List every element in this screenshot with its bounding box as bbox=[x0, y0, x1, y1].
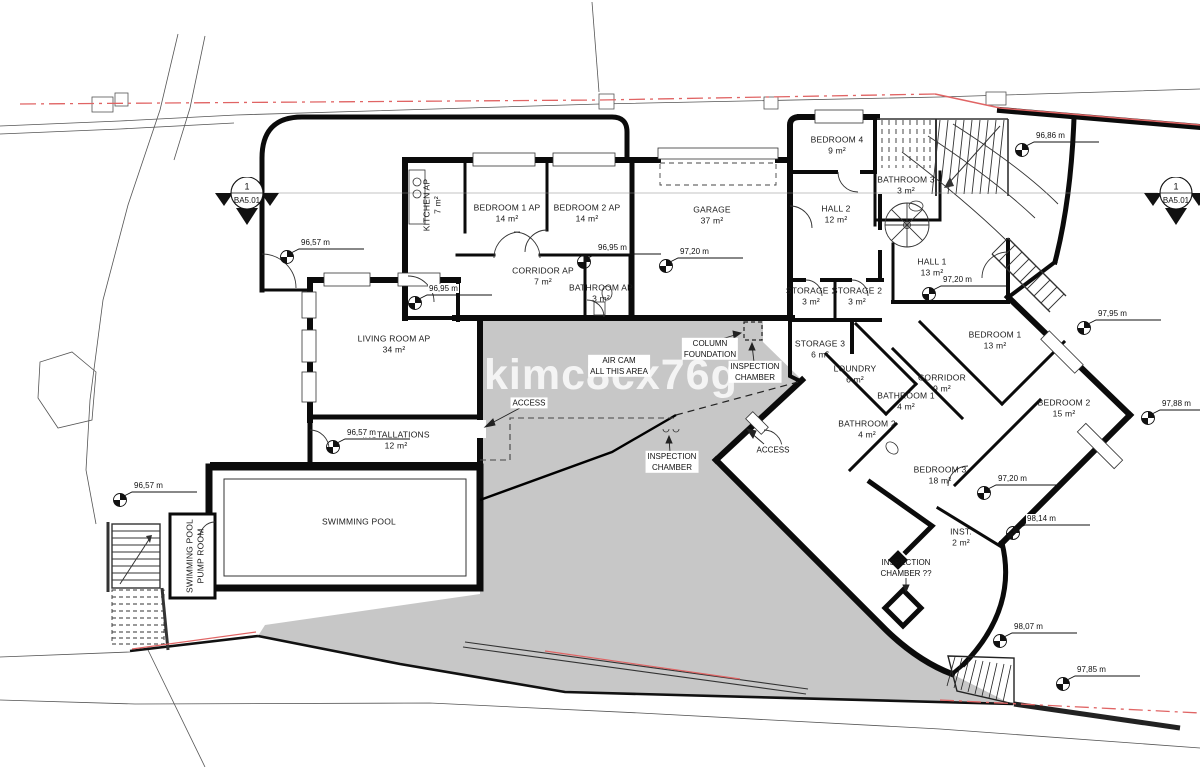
elevation-value: 97,85 m bbox=[1076, 665, 1107, 674]
elevation-value: 96,95 m bbox=[597, 243, 628, 252]
room-label-loundry: LOUNDRY6 m² bbox=[834, 364, 877, 387]
annotation-column-foundation: COLUMNFOUNDATION bbox=[682, 338, 738, 360]
floor-plan-canvas: kimc8cx76g KITCHEN AP7 m²BEDROOM 1 AP14 … bbox=[0, 0, 1200, 767]
room-label-storage-2: STORAGE 23 m² bbox=[832, 286, 882, 309]
elevation-value: 97,20 m bbox=[942, 275, 973, 284]
room-label-kitchen-ap: KITCHEN AP7 m² bbox=[422, 179, 445, 232]
room-label-bedroom-1-ap: BEDROOM 1 AP14 m² bbox=[474, 203, 541, 226]
room-label-garage: GARAGE37 m² bbox=[693, 205, 731, 228]
svg-text:BA5.01: BA5.01 bbox=[1163, 196, 1190, 205]
room-label-living-room-ap: LIVING ROOM AP34 m² bbox=[358, 334, 431, 357]
elevation-value: 96,95 m bbox=[428, 284, 459, 293]
room-label-swimming-pool-pump-room: SWIMMING POOLPUMP ROOM bbox=[185, 519, 208, 593]
elevation-value: 97,95 m bbox=[1097, 309, 1128, 318]
room-label-swimming-pool: SWIMMING POOL bbox=[322, 516, 396, 527]
svg-text:BA5.01: BA5.01 bbox=[234, 196, 261, 205]
room-label-hall-2: HALL 212 m² bbox=[821, 204, 850, 227]
room-label-bathroom-ap: BATHROOM AP3 m² bbox=[569, 283, 633, 306]
room-label-corridor-ap: CORRIDOR AP7 m² bbox=[512, 266, 574, 289]
room-label-bathroom-2: BATHROOM 24 m² bbox=[838, 419, 896, 442]
elevation-value: 98,14 m bbox=[1026, 514, 1057, 523]
elevation-value: 98,07 m bbox=[1013, 622, 1044, 631]
elevation-value: 97,20 m bbox=[997, 474, 1028, 483]
room-label-storage-1: STORAGE 13 m² bbox=[786, 286, 836, 309]
annotation-access: ACCESS bbox=[511, 397, 548, 408]
svg-text:1: 1 bbox=[244, 182, 249, 192]
room-label-bedroom-4: BEDROOM 49 m² bbox=[811, 135, 864, 158]
annotation-air-cam-all-this-area: AIR CAMALL THIS AREA bbox=[588, 355, 650, 377]
room-label-bathroom-3: BATHROOM 33 m² bbox=[877, 175, 935, 198]
room-label-bathroom-1: BATHROOM 14 m² bbox=[877, 391, 935, 414]
svg-text:1: 1 bbox=[1173, 182, 1178, 192]
room-label-bedroom-3: BEDROOM 318 m² bbox=[914, 465, 967, 488]
labels-layer: KITCHEN AP7 m²BEDROOM 1 AP14 m²BEDROOM 2… bbox=[0, 0, 1200, 767]
elevation-value: 97,88 m bbox=[1161, 399, 1192, 408]
annotation-inspection-chamber: INSPECTIONCHAMBER bbox=[646, 451, 699, 473]
room-label-bedroom-1: BEDROOM 113 m² bbox=[969, 330, 1022, 353]
room-label-bedroom-2: BEDROOM 215 m² bbox=[1038, 398, 1091, 421]
elevation-value: 96,57 m bbox=[300, 238, 331, 247]
room-label-storage-3: STORAGE 36 m² bbox=[795, 339, 845, 362]
annotation-access: ACCESS bbox=[755, 444, 792, 455]
annotation-inspection-chamber: INSPECTIONCHAMBER ?? bbox=[880, 557, 931, 579]
elevation-value: 96,86 m bbox=[1035, 131, 1066, 140]
room-label-bedroom-2-ap: BEDROOM 2 AP14 m² bbox=[554, 203, 621, 226]
room-label-inst: INST.2 m² bbox=[950, 527, 972, 550]
annotation-inspection-chamber: INSPECTIONCHAMBER bbox=[729, 361, 782, 383]
elevation-value: 97,20 m bbox=[679, 247, 710, 256]
elevation-value: 96,57 m bbox=[133, 481, 164, 490]
elevation-value: 96,57 m bbox=[346, 428, 377, 437]
